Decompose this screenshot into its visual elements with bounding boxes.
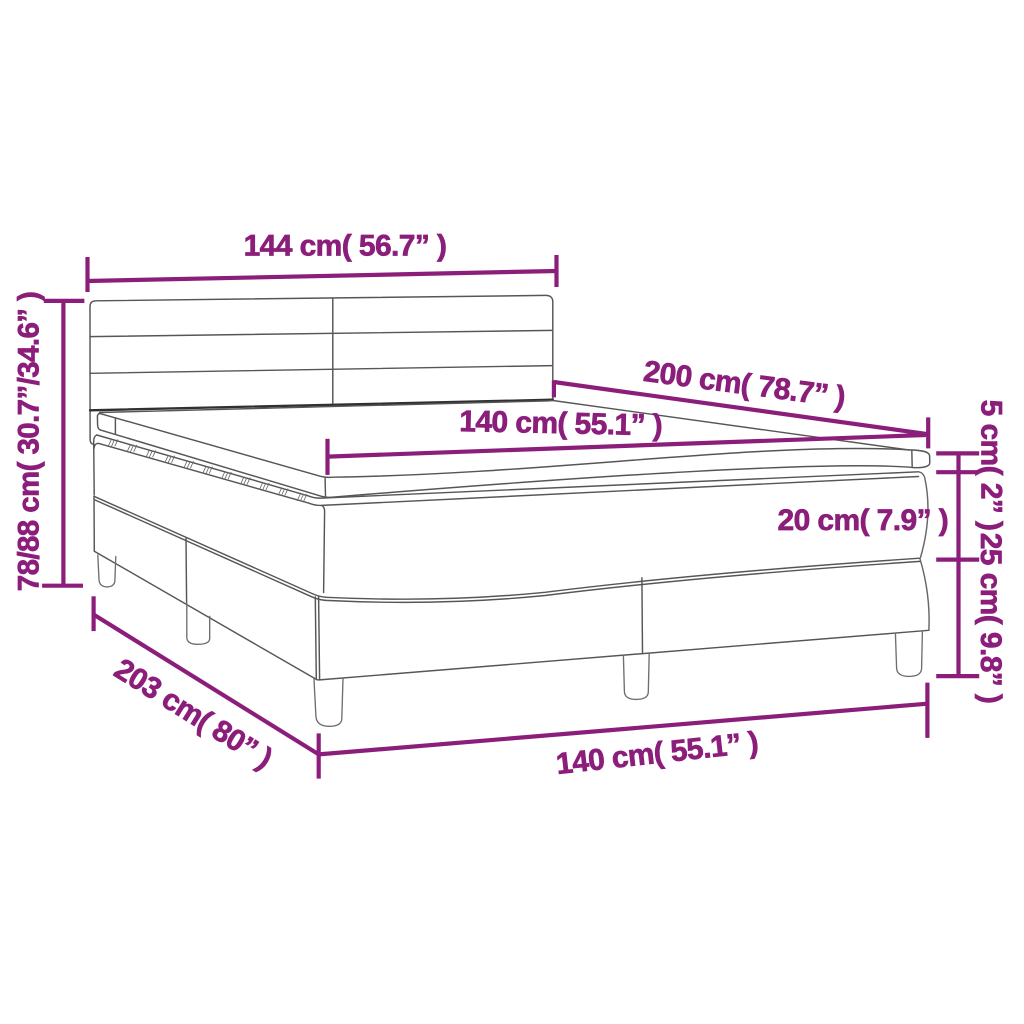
svg-text:144 cm( 56.7” ): 144 cm( 56.7” ) [244, 230, 447, 263]
svg-text:25 cm( 9.8” ): 25 cm( 9.8” ) [974, 533, 1007, 704]
svg-text:5 cm( 2” ): 5 cm( 2” ) [975, 400, 1008, 531]
svg-text:140 cm( 55.1” ): 140 cm( 55.1” ) [459, 405, 662, 442]
svg-text:78/88 cm( 30.7”/34.6” ): 78/88 cm( 30.7”/34.6” ) [13, 292, 46, 591]
svg-text:200 cm( 78.7” ): 200 cm( 78.7” ) [642, 355, 847, 414]
svg-text:20 cm( 7.9” ): 20 cm( 7.9” ) [777, 504, 948, 537]
